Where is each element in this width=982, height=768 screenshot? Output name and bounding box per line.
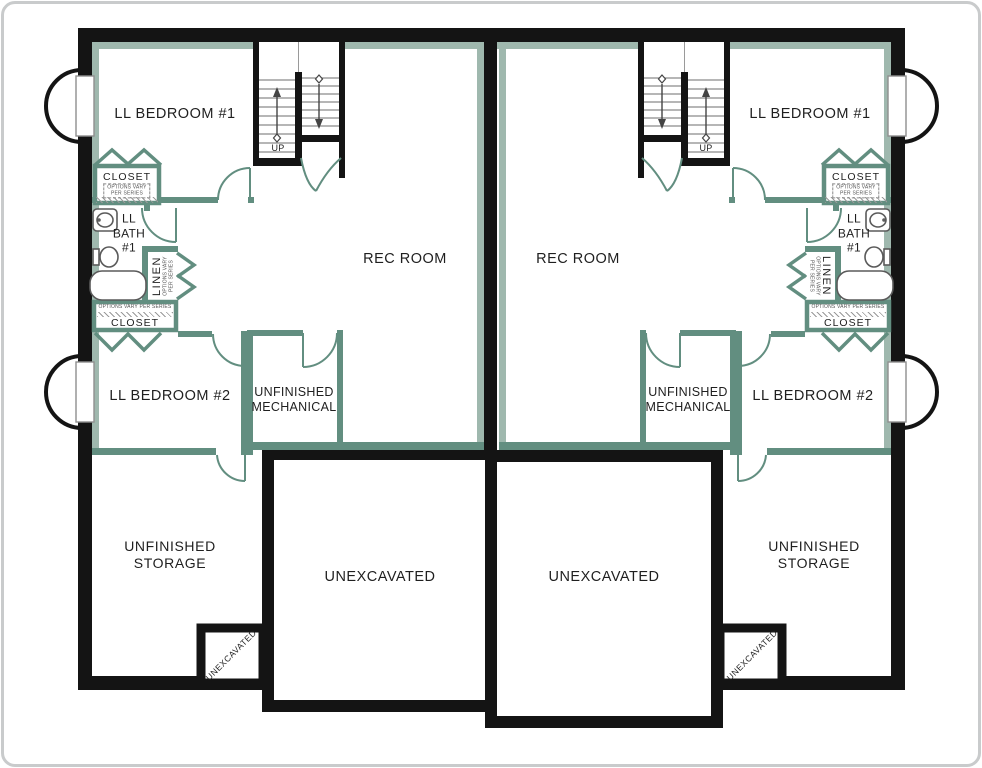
options-line: PER SERIES bbox=[808, 256, 814, 295]
mech-line: MECHANICAL bbox=[646, 400, 731, 415]
room-label-bedroom1-right: LL BEDROOM #1 bbox=[749, 106, 870, 122]
room-label-mechanical-left: UNFINISHED MECHANICAL bbox=[252, 385, 337, 415]
floorplan-canvas: LL BEDROOM #1 CLOSET OPTIONS VARY PER SE… bbox=[0, 0, 982, 768]
room-label-mechanical-right: UNFINISHED MECHANICAL bbox=[646, 385, 731, 415]
options-note-closet-right: OPTIONS VARY PER SERIES bbox=[832, 183, 879, 198]
storage-line: UNFINISHED bbox=[768, 538, 860, 555]
right-stairs bbox=[638, 42, 730, 191]
room-label-storage-right: UNFINISHED STORAGE bbox=[768, 538, 860, 572]
room-label-unexcavated-left: UNEXCAVATED bbox=[324, 569, 435, 585]
room-label-unexcavated-right: UNEXCAVATED bbox=[548, 569, 659, 585]
stairs-up-label-left: UP bbox=[271, 143, 284, 153]
bath-line: #1 bbox=[113, 240, 145, 255]
options-line: PER SERIES bbox=[836, 191, 875, 197]
bath-line: #1 bbox=[838, 240, 870, 255]
options-note-closet2-left: OPTIONS VARY PER SERIES bbox=[99, 305, 172, 311]
storage-line: STORAGE bbox=[768, 555, 860, 572]
room-label-bath-left: LL BATH #1 bbox=[113, 211, 145, 255]
room-label-rec-room-left: REC ROOM bbox=[363, 251, 447, 267]
options-note-linen-left: OPTIONS VARY PER SERIES bbox=[163, 256, 174, 295]
room-label-rec-room-right: REC ROOM bbox=[536, 251, 620, 267]
room-label-storage-left: UNFINISHED STORAGE bbox=[124, 538, 216, 572]
room-label-closet-bottom-left: CLOSET bbox=[111, 317, 159, 329]
mech-line: UNFINISHED bbox=[646, 385, 731, 400]
left-stairs bbox=[253, 42, 345, 191]
bath-line: LL bbox=[838, 211, 870, 226]
room-label-closet-top-left: CLOSET bbox=[103, 171, 151, 183]
options-line: OPTIONS VARY bbox=[814, 256, 820, 295]
options-note-closet-left: OPTIONS VARY PER SERIES bbox=[103, 183, 150, 198]
room-label-bath-right: LL BATH #1 bbox=[838, 211, 870, 255]
room-label-linen-right: LINEN bbox=[820, 256, 832, 296]
room-label-closet-bottom-right: CLOSET bbox=[824, 317, 872, 329]
stairs-up-label-right: UP bbox=[699, 143, 712, 153]
options-note-linen-right: OPTIONS VARY PER SERIES bbox=[808, 256, 819, 295]
options-note-closet2-right: OPTIONS VARY PER SERIES bbox=[812, 305, 885, 311]
room-label-bedroom2-left: LL BEDROOM #2 bbox=[109, 388, 230, 404]
options-line: PER SERIES bbox=[107, 191, 146, 197]
options-line: PER SERIES bbox=[169, 256, 175, 295]
bath-line: BATH bbox=[113, 226, 145, 241]
bath-line: LL bbox=[113, 211, 145, 226]
storage-line: STORAGE bbox=[124, 555, 216, 572]
room-label-bedroom2-right: LL BEDROOM #2 bbox=[752, 388, 873, 404]
room-label-linen-left: LINEN bbox=[151, 256, 163, 296]
mech-line: MECHANICAL bbox=[252, 400, 337, 415]
bath-line: BATH bbox=[838, 226, 870, 241]
storage-line: UNFINISHED bbox=[124, 538, 216, 555]
room-label-bedroom1-left: LL BEDROOM #1 bbox=[114, 106, 235, 122]
mech-line: UNFINISHED bbox=[252, 385, 337, 400]
unexcavated-walls bbox=[201, 454, 782, 722]
room-label-closet-top-right: CLOSET bbox=[832, 171, 880, 183]
